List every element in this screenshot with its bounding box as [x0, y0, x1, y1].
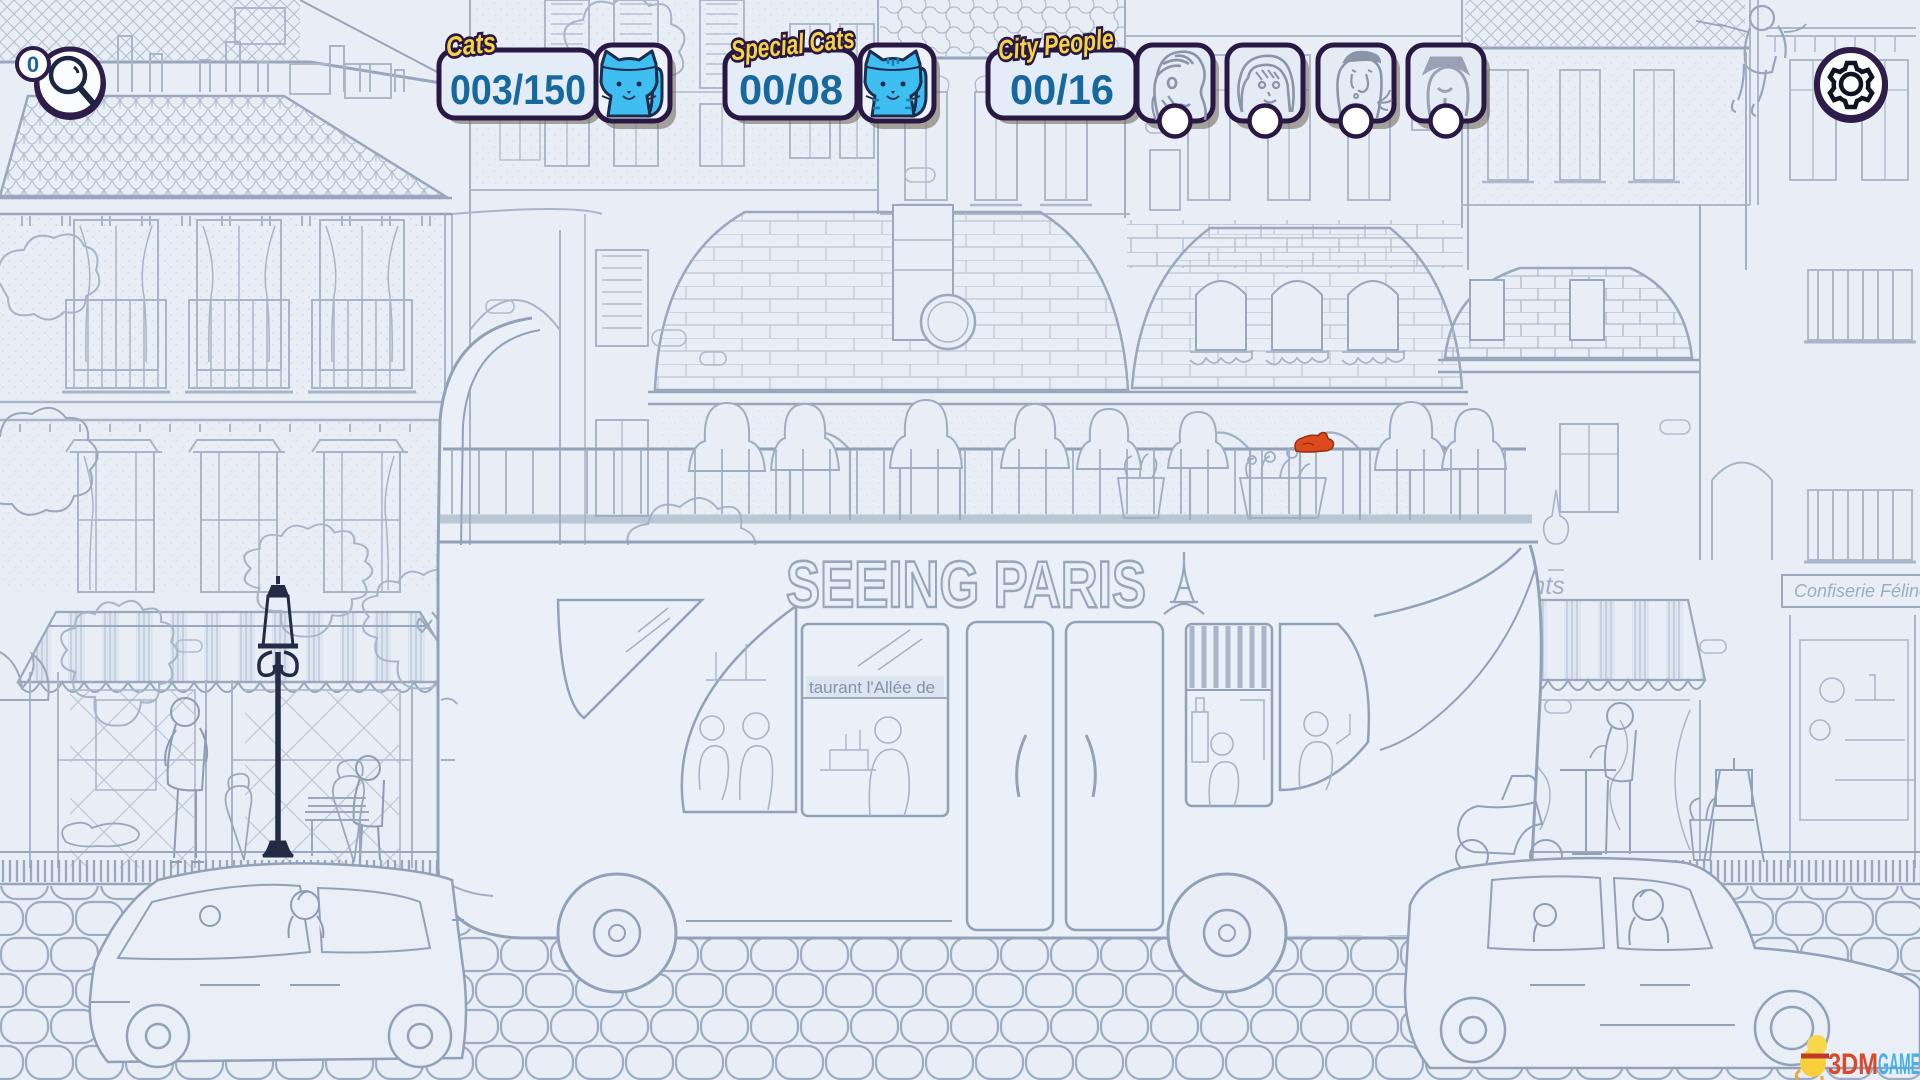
svg-text:taurant l'Allée de: taurant l'Allée de [809, 678, 935, 697]
svg-text:3DM: 3DM [1828, 1048, 1878, 1080]
svg-text:0: 0 [27, 52, 39, 77]
svg-text:GAME: GAME [1878, 1048, 1920, 1080]
svg-text:00/16: 00/16 [1010, 66, 1114, 113]
svg-text:SEEING PARIS: SEEING PARIS [786, 547, 1146, 621]
svg-text:003/150: 003/150 [450, 66, 586, 113]
svg-text:Confiserie Féline: Confiserie Féline [1794, 581, 1920, 601]
svg-text:00/08: 00/08 [739, 66, 843, 113]
svg-text:Cats: Cats [444, 26, 497, 62]
